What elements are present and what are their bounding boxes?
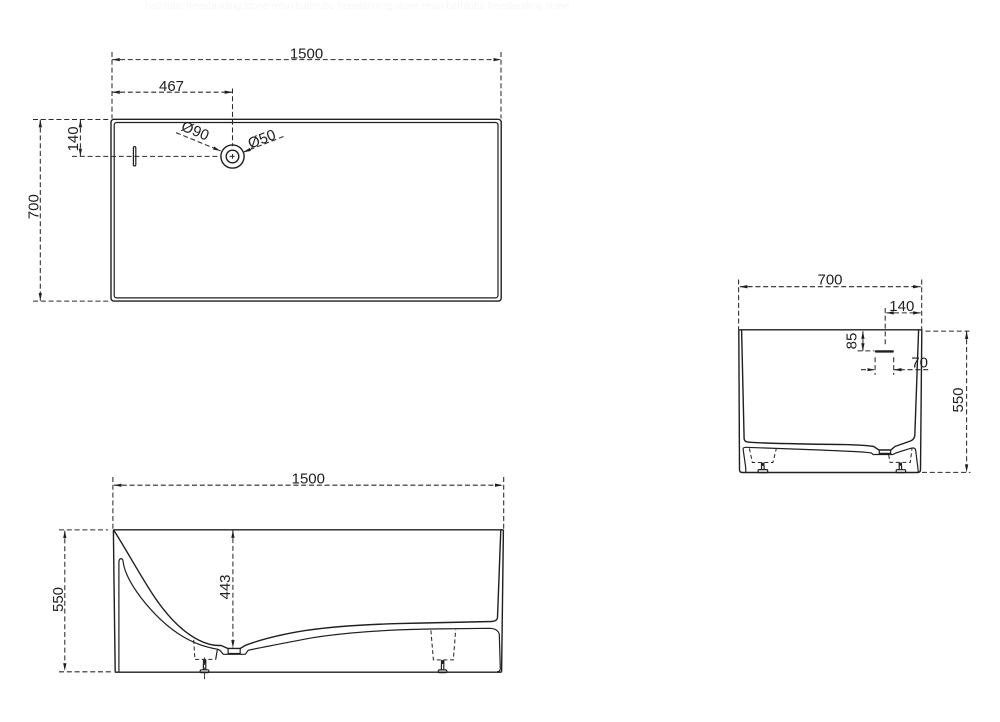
svg-text:700: 700: [25, 194, 42, 219]
svg-text:Ø50: Ø50: [246, 126, 279, 152]
svg-text:1500: 1500: [290, 45, 323, 62]
svg-text:140: 140: [889, 298, 914, 315]
svg-text:700: 700: [817, 271, 842, 288]
svg-text:443: 443: [217, 574, 234, 599]
svg-text:140: 140: [65, 126, 82, 151]
svg-text:85: 85: [844, 333, 861, 350]
svg-text:550: 550: [50, 587, 67, 612]
svg-text:550: 550: [950, 387, 967, 412]
svg-text:1500: 1500: [292, 471, 325, 488]
svg-text:467: 467: [159, 78, 184, 95]
svg-text:70: 70: [911, 354, 928, 371]
svg-text:bathtubs freestanding stone re: bathtubs freestanding stone resin bathtu…: [145, 1, 570, 12]
